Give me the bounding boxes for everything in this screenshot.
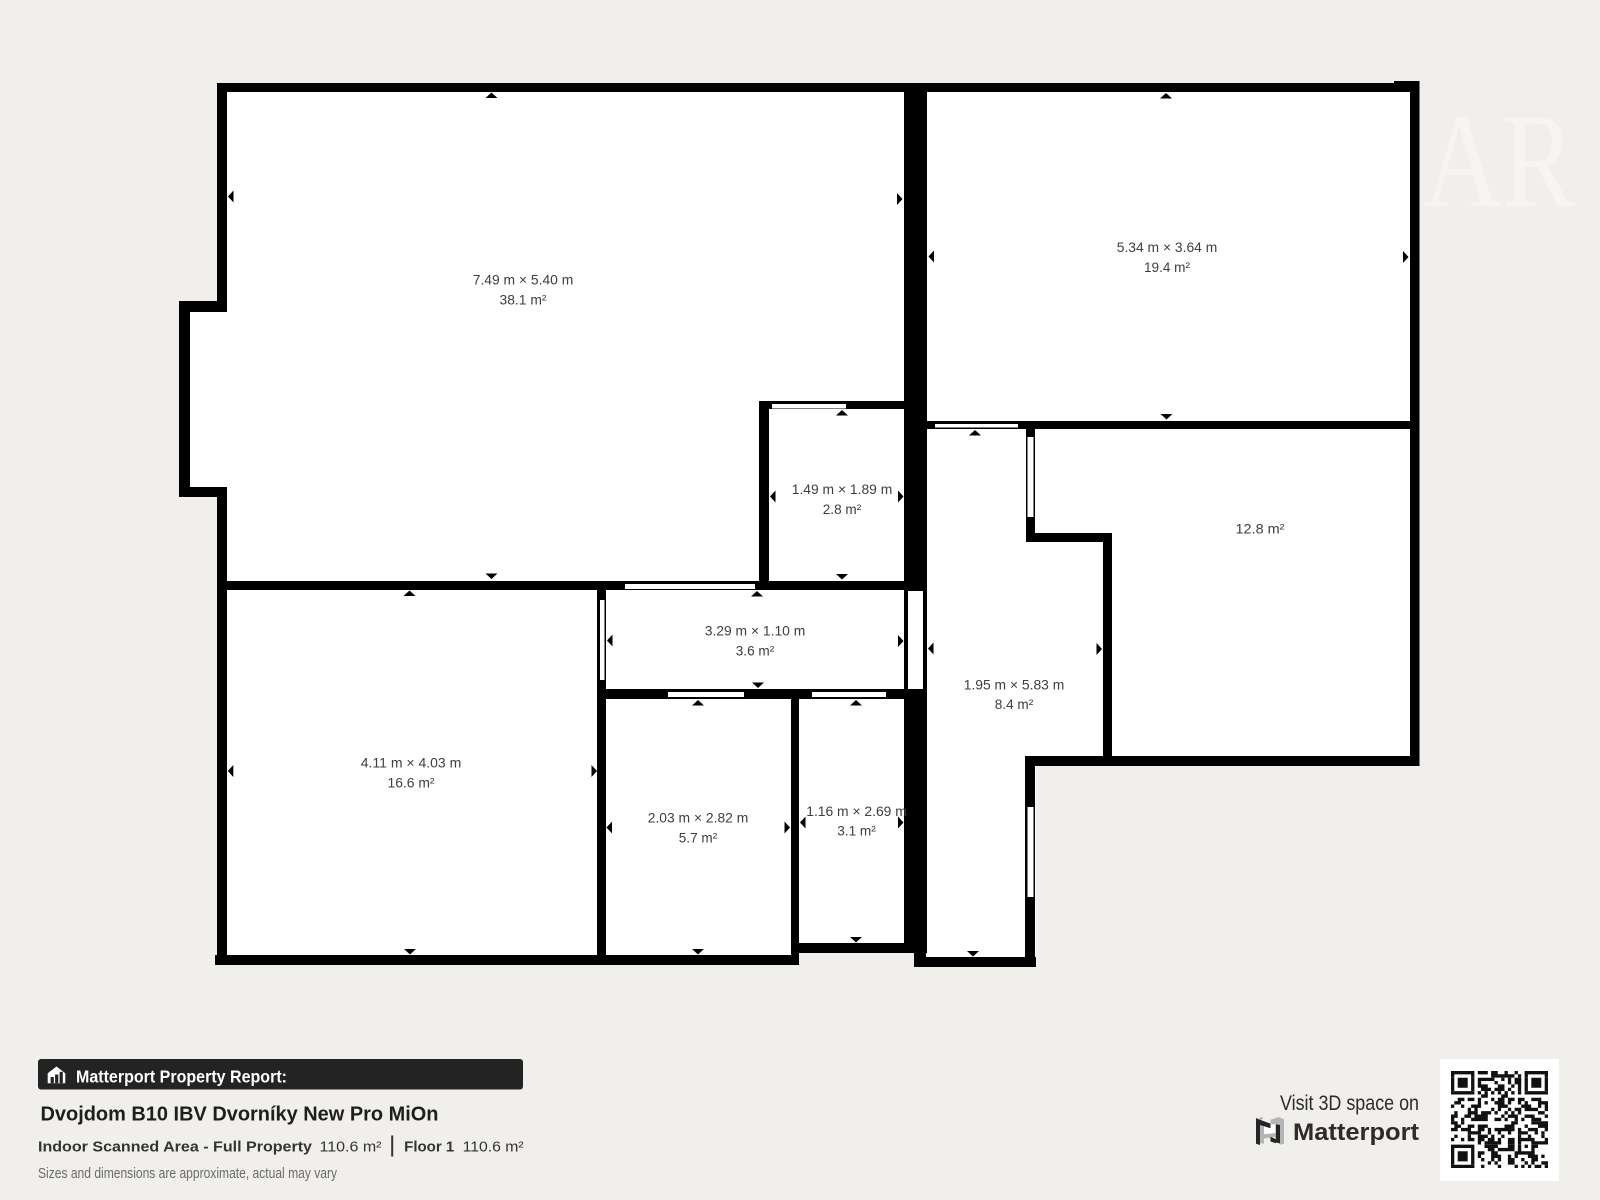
svg-text:12.8 m²: 12.8 m² (1236, 521, 1285, 537)
svg-text:1.95 m × 5.83 m: 1.95 m × 5.83 m (964, 676, 1065, 692)
svg-text:3.6 m²: 3.6 m² (736, 643, 775, 659)
svg-text:16.6 m²: 16.6 m² (388, 774, 435, 790)
svg-text:Matterport Property Report:: Matterport Property Report: (76, 1067, 287, 1087)
svg-text:8.4 m²: 8.4 m² (995, 696, 1034, 712)
svg-text:5.34 m × 3.64 m: 5.34 m × 3.64 m (1117, 239, 1218, 255)
svg-text:38.1 m²: 38.1 m² (500, 291, 547, 307)
svg-text:Sizes and dimensions are appro: Sizes and dimensions are approximate, ac… (38, 1166, 338, 1182)
svg-text:Floor 1: Floor 1 (404, 1140, 454, 1156)
svg-text:7.49 m × 5.40 m: 7.49 m × 5.40 m (473, 271, 574, 287)
svg-text:Visit 3D space on: Visit 3D space on (1280, 1091, 1419, 1115)
svg-text:19.4 m²: 19.4 m² (1144, 259, 1190, 275)
svg-text:Dvojdom B10 IBV Dvorníky New P: Dvojdom B10 IBV Dvorníky New Pro MiOn (41, 1104, 439, 1126)
svg-text:Matterport: Matterport (1293, 1119, 1419, 1146)
svg-text:3.29 m × 1.10 m: 3.29 m × 1.10 m (705, 623, 806, 639)
svg-text:110.6 m²: 110.6 m² (320, 1140, 382, 1156)
svg-text:1.49 m × 1.89 m: 1.49 m × 1.89 m (792, 481, 893, 497)
svg-text:AR: AR (1423, 87, 1575, 236)
svg-text:2.03 m × 2.82 m: 2.03 m × 2.82 m (648, 810, 749, 826)
svg-text:3.1 m²: 3.1 m² (837, 823, 876, 839)
svg-text:Indoor Scanned Area - Full Pro: Indoor Scanned Area - Full Property (38, 1140, 312, 1156)
svg-text:110.6 m²: 110.6 m² (463, 1140, 524, 1156)
svg-text:2.8 m²: 2.8 m² (823, 501, 862, 517)
svg-text:5.7 m²: 5.7 m² (679, 830, 718, 846)
svg-text:1.16 m × 2.69 m: 1.16 m × 2.69 m (806, 803, 907, 819)
svg-text:4.11 m × 4.03 m: 4.11 m × 4.03 m (361, 754, 462, 770)
